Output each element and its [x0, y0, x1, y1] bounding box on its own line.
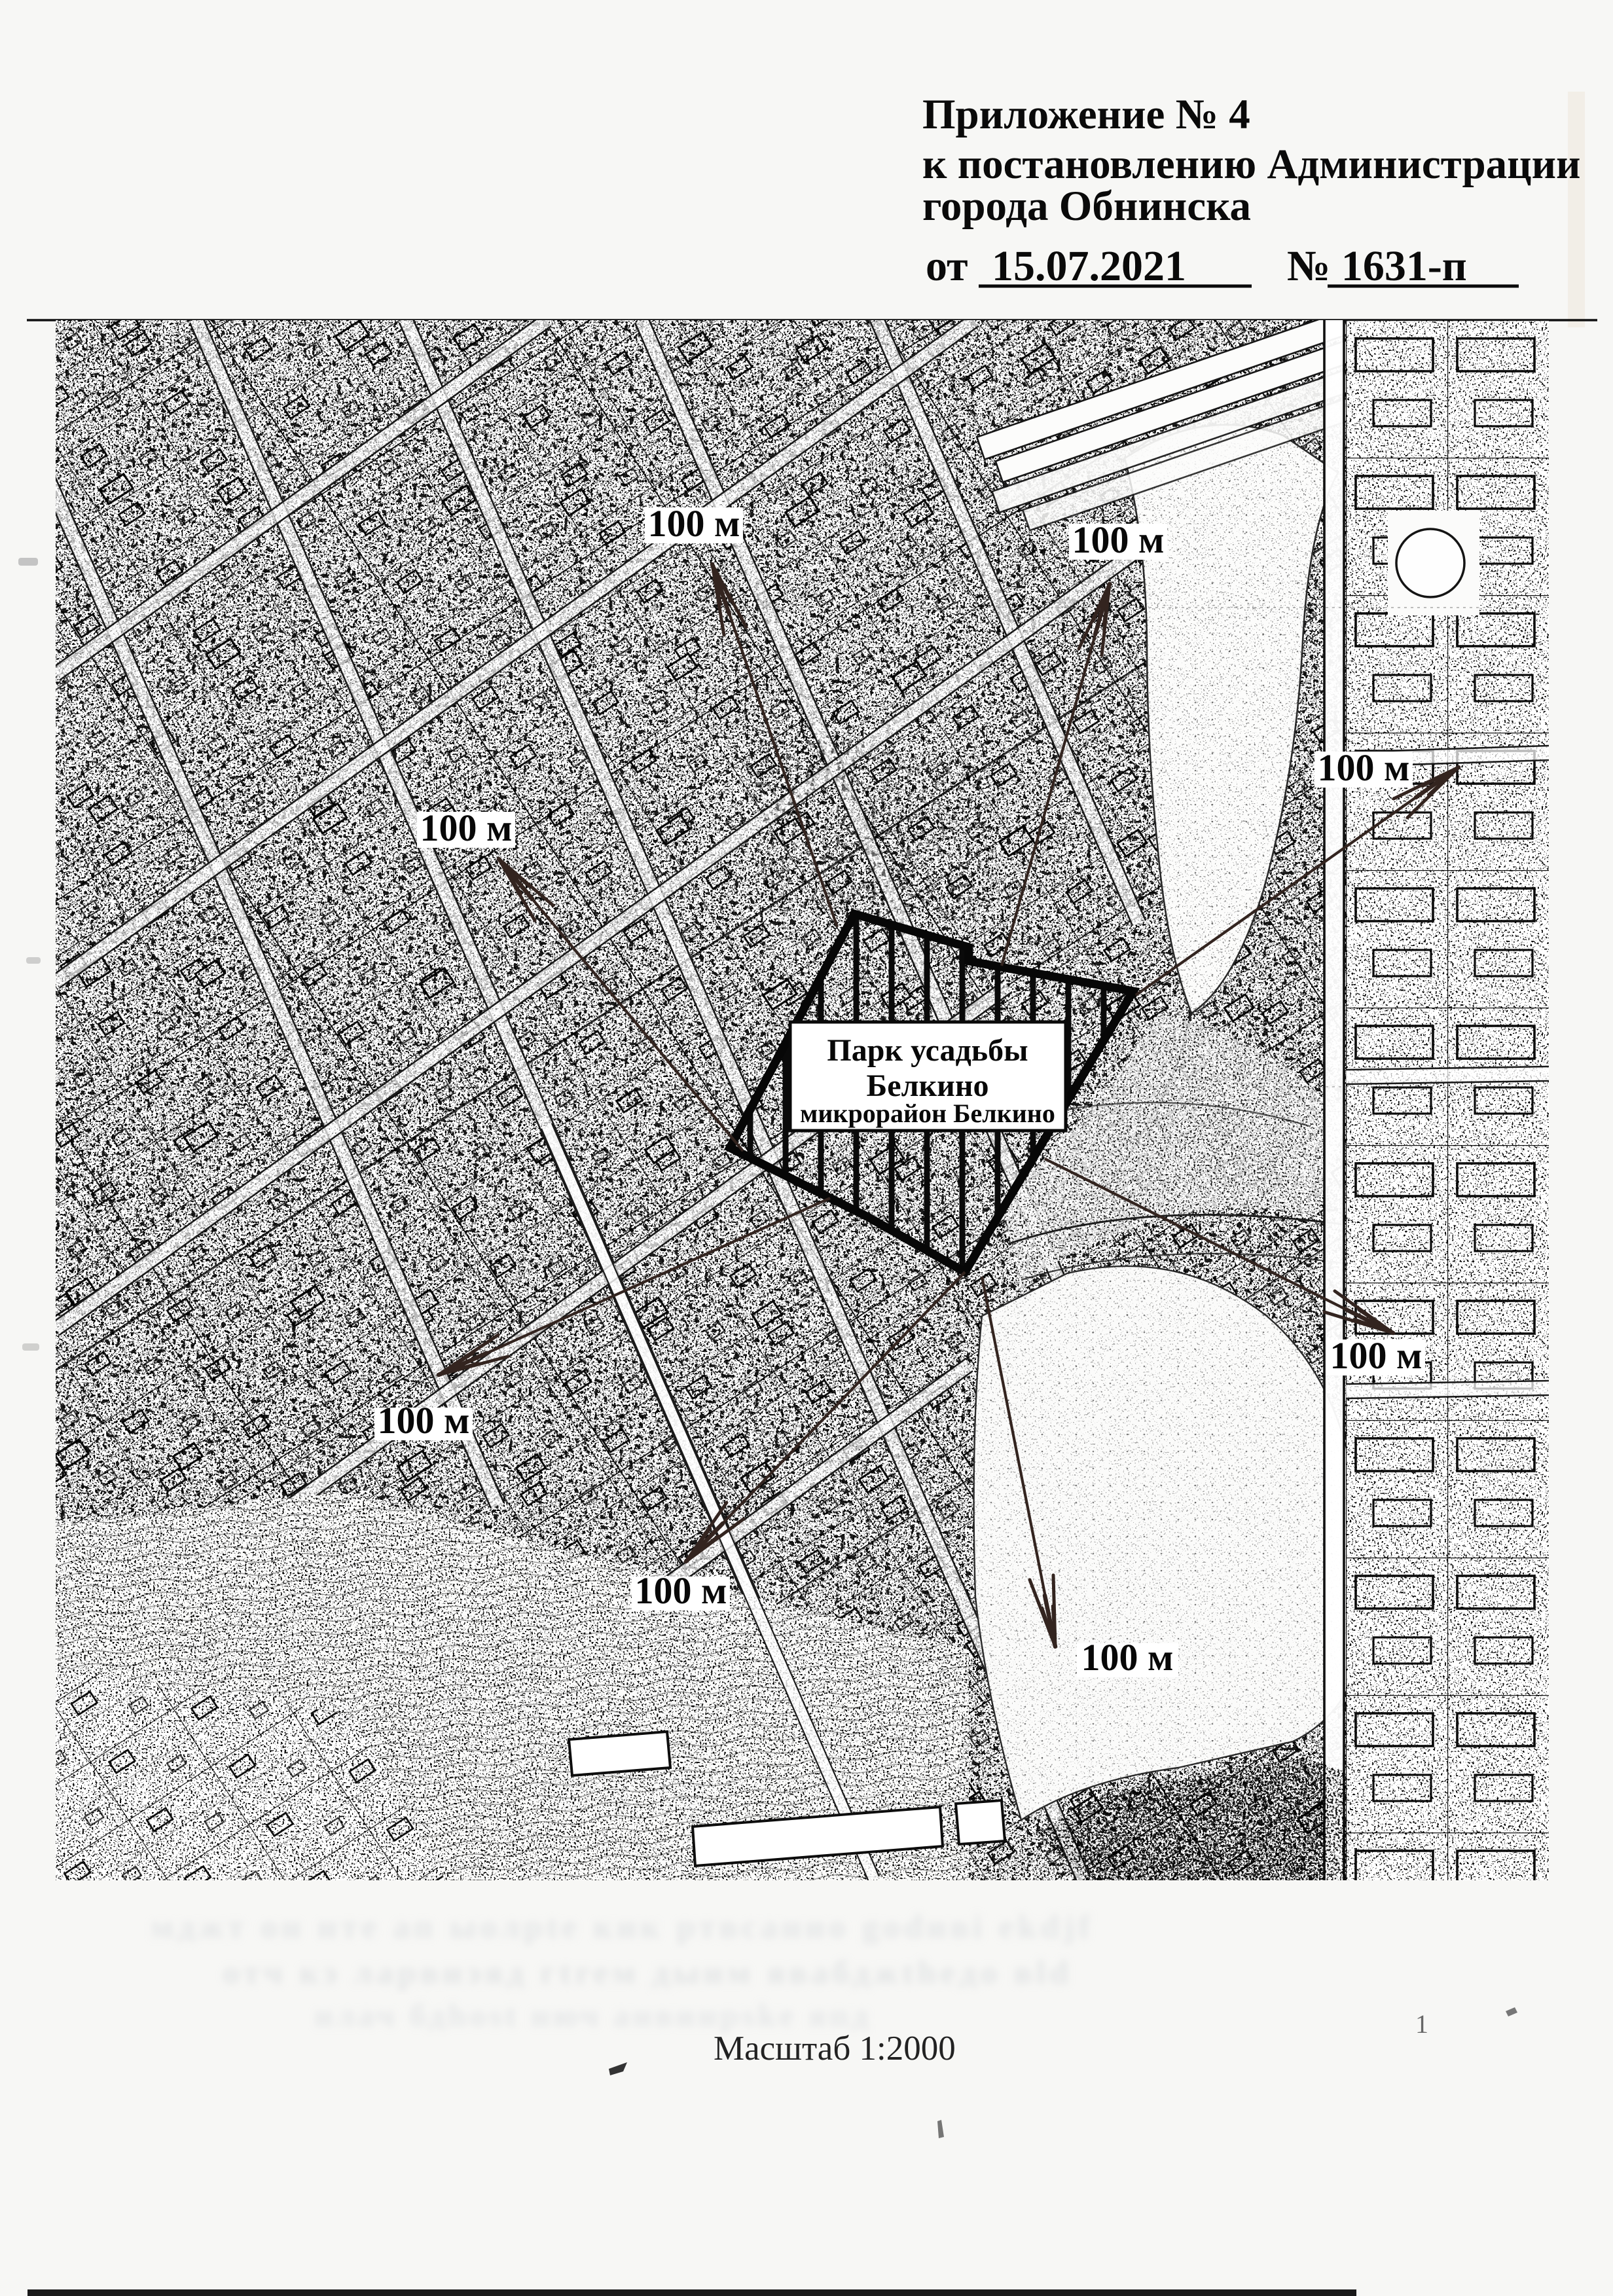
svg-text:100 м: 100 м: [1330, 1334, 1422, 1377]
svg-text:микрорайон Белкино: микрорайон Белкино: [800, 1099, 1055, 1128]
svg-text:к постановлению Администрации: к постановлению Администрации: [922, 141, 1580, 188]
svg-text:Приложение № 4: Приложение № 4: [922, 91, 1250, 138]
svg-text:нлач бдhost нюч анвинрske япд: нлач бдhost нюч анвинрske япд: [314, 1997, 871, 2033]
svg-text:1: 1: [1415, 2009, 1428, 2039]
svg-text:отч кэ ларвиэяд гtreм дыим: отч кэ ларвиэяд гtreм дыим явабджtheдо в…: [223, 1954, 1072, 1992]
svg-text:100 м: 100 м: [647, 502, 740, 545]
svg-text:100 м: 100 м: [1081, 1636, 1173, 1679]
svg-text:100 м: 100 м: [420, 807, 512, 849]
svg-text:мджт он нте ап ыолрtе кик: мджт он нте ап ыолрtе кик ртвcанио godив…: [151, 1908, 1094, 1946]
svg-text:от: от: [926, 242, 968, 290]
svg-text:100 м: 100 м: [1072, 519, 1164, 561]
svg-text:города Обнинска: города Обнинска: [922, 183, 1251, 230]
svg-text:100 м: 100 м: [634, 1569, 727, 1612]
svg-text:№ 1631-п: № 1631-п: [1287, 242, 1467, 290]
svg-text:100 м: 100 м: [1317, 746, 1409, 789]
svg-text:Парк усадьбы: Парк усадьбы: [827, 1033, 1028, 1068]
svg-text:15.07.2021: 15.07.2021: [992, 242, 1186, 290]
svg-text:Масштаб 1:2000: Масштаб 1:2000: [714, 2030, 956, 2068]
svg-text:100 м: 100 м: [377, 1399, 469, 1442]
